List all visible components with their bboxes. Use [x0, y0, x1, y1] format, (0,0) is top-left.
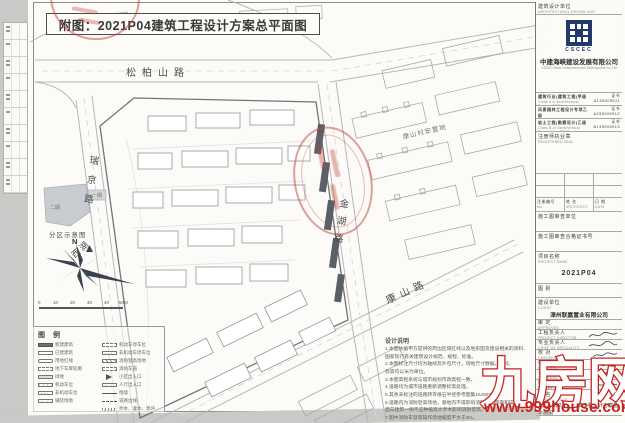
legend-swatch	[102, 359, 117, 363]
drawing-type-row: 图 别	[536, 284, 622, 298]
client-name: 漳州联嘉置业有限公司	[538, 310, 620, 319]
legend-item: 用地红线	[38, 358, 98, 365]
legend-item: 非机动车停车位	[102, 350, 162, 357]
legend-item: 地下车库轮廓	[38, 366, 98, 373]
company-name: 中建海峡建设发展有限公司	[538, 56, 620, 66]
scale-tick: 10	[53, 300, 58, 305]
legend-swatch	[38, 343, 53, 347]
client-row: 建设单位 CLIENT 漳州联嘉置业有限公司	[536, 298, 622, 320]
reg-table-empty-row	[536, 186, 622, 198]
cscec-logo-icon	[566, 20, 592, 46]
road-label-songbaishan: 松柏山路	[126, 64, 190, 79]
company-block: CSCEC 中建海峡建设发展有限公司 CSCEC Strait Construc…	[536, 15, 622, 93]
scale-bar: 0 10 20 30 40 50M	[38, 300, 138, 312]
legend-item: 人行出入口	[102, 382, 162, 389]
review-unit-row: 施工图审查单位	[536, 212, 622, 232]
project-name-row: 项目名称 PROJECT NAME 2021P04	[536, 252, 622, 284]
inset-title: 分区示意图	[49, 229, 87, 239]
signature	[588, 331, 618, 339]
legend-item: 已建建筑	[38, 350, 98, 357]
legend-item: 新建建筑	[38, 342, 98, 349]
registered-seal-area: 注册师执业章 REGISTERED SEAL	[536, 132, 622, 174]
legend-title: 图 例	[38, 330, 162, 340]
cert-row: 风景园林工程设计专项乙级Class B of Landscape Design …	[536, 106, 622, 119]
design-unit-row: 建筑设计单位 ARCHITECTURAL DESIGN UNIT	[536, 2, 622, 15]
legend-swatch	[102, 351, 117, 355]
legend-swatch	[38, 383, 53, 387]
watermark-url: www.999house.com	[484, 399, 625, 417]
legend-item: 绿地	[38, 374, 98, 381]
legend-swatch	[38, 375, 53, 379]
legend-swatch	[38, 359, 53, 363]
legend-item: 机动车停车位	[102, 342, 162, 349]
scale-tick: 0	[38, 300, 41, 305]
legend-item: 消防车道	[102, 366, 162, 373]
legend-swatch	[102, 343, 117, 347]
cert-row: 岩土工程(勘察设计)乙级Class B of Geotechnical Engi…	[536, 119, 622, 132]
legend-item: 消防登高场地	[102, 358, 162, 365]
legend-item: 道路边线	[102, 398, 162, 405]
legend-item: 乔木、灌木、草坪	[102, 406, 162, 413]
inset-phase2-label: 二期	[50, 204, 60, 211]
scale-bar-rule	[39, 307, 123, 309]
reg-table-empty-row	[536, 174, 622, 186]
scale-tick: 20	[70, 300, 75, 305]
legend-item: 小区出入口	[102, 374, 162, 381]
legend: 图 例 新建建筑 已建建筑 用地红线 地下车库轮廓 绿地 机动车位 非机动车位 …	[33, 326, 165, 412]
legend-swatch	[38, 399, 53, 403]
cscec-logo-word: CSCEC	[538, 47, 620, 53]
inset-phase1-label: 一期	[92, 192, 102, 199]
legend-item: 铺装场地	[38, 398, 98, 405]
company-name-en: CSCEC Strait Construction and Developmen…	[538, 66, 620, 70]
legend-swatch	[38, 367, 53, 371]
reg-table-header: 注册编号No. 姓 名ARCHITECT 日 期DATE	[536, 198, 622, 212]
legend-item: 围墙	[102, 390, 162, 397]
review-cert-row: 施工图审查合格证书号	[536, 232, 622, 252]
legend-swatch	[102, 408, 117, 411]
legend-swatch	[38, 351, 53, 355]
approved-row: 审 定APPROVED	[536, 320, 622, 330]
scanned-drawing-sheet: 附图：2021P04建筑工程设计方案总平面图 松柏山路 瑞京路 金湖路 康山路 …	[0, 0, 625, 423]
scale-tick: 30	[87, 300, 92, 305]
legend-swatch	[102, 401, 117, 402]
legend-swatch	[38, 391, 53, 395]
legend-swatch	[102, 393, 117, 394]
legend-swatch-arrow-icon	[102, 375, 117, 379]
compass-rose-icon	[46, 244, 134, 292]
project-number: 2021P04	[538, 264, 620, 277]
legend-item: 非机动车位	[38, 390, 98, 397]
legend-swatch	[102, 367, 117, 371]
legend-item: 机动车位	[38, 382, 98, 389]
scale-tick: 50M	[119, 300, 128, 305]
cert-row: 建筑行业(建筑工程)甲级Class A of Architectural Des…	[536, 93, 622, 106]
project-director-row: 工程负责人PROJECT DIRECTOR	[536, 330, 622, 340]
legend-swatch	[102, 383, 117, 387]
scale-tick: 40	[104, 300, 109, 305]
north-label: N	[72, 237, 77, 246]
